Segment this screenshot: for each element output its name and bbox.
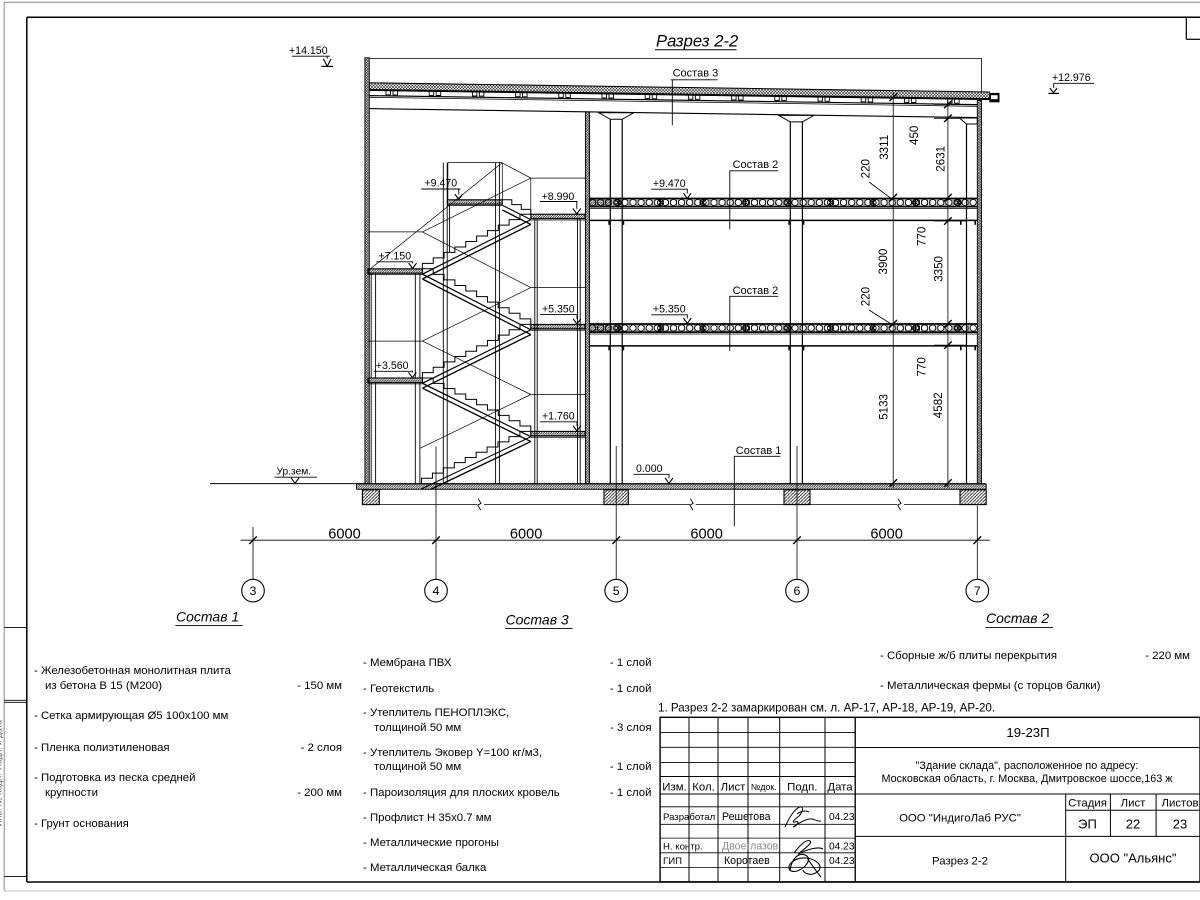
svg-text:+12.976: +12.976	[1052, 72, 1091, 84]
svg-text:- Утеплитель ПЕНОПЛЭКС,: - Утеплитель ПЕНОПЛЭКС,	[363, 707, 509, 719]
svg-text:Лист: Лист	[1121, 798, 1147, 810]
svg-text:6000: 6000	[870, 527, 902, 543]
svg-text:Состав 3: Состав 3	[506, 612, 569, 628]
svg-text:- Сетка армирующая Ø5 100x100: - Сетка армирующая Ø5 100x100 мм	[34, 710, 228, 722]
svg-text:3350: 3350	[932, 256, 945, 282]
svg-text:ООО "Альянс": ООО "Альянс"	[1090, 851, 1177, 866]
svg-text:"Здание склада", расположенное: "Здание склада", расположенное по адресу…	[916, 760, 1139, 772]
svg-text:Изм.: Изм.	[662, 782, 686, 794]
svg-text:Решетова: Решетова	[722, 811, 771, 823]
svg-text:04.23: 04.23	[829, 812, 855, 823]
svg-text:- 200 мм: - 200 мм	[297, 787, 342, 799]
svg-text:ЭП: ЭП	[1078, 817, 1097, 832]
svg-text:- Подготовка из песка средней: - Подготовка из песка средней	[34, 772, 196, 784]
svg-text:+8.990: +8.990	[542, 191, 575, 203]
svg-text:Подп.: Подп.	[787, 782, 817, 794]
svg-text:Состав 2: Состав 2	[986, 610, 1049, 626]
svg-text:6000: 6000	[690, 527, 722, 543]
svg-text:Разработал: Разработал	[663, 812, 715, 823]
svg-text:3900: 3900	[877, 249, 890, 275]
svg-text:- 3 слоя: - 3 слоя	[610, 722, 651, 734]
svg-text:+5.350: +5.350	[542, 303, 575, 315]
svg-text:- Металлические прогоны: - Металлические прогоны	[363, 837, 499, 849]
svg-text:2631: 2631	[934, 146, 947, 172]
svg-text:1. Разрез 2-2 замаркирован см.: 1. Разрез 2-2 замаркирован см. л. АР-17,…	[658, 702, 995, 715]
svg-text:- 1 слой: - 1 слой	[610, 787, 652, 799]
svg-text:0.000: 0.000	[636, 463, 663, 475]
svg-text:23: 23	[1173, 817, 1187, 832]
svg-text:Листов: Листов	[1161, 798, 1198, 810]
svg-text:7: 7	[974, 584, 981, 598]
svg-text:450: 450	[908, 126, 921, 145]
svg-text:Стадия: Стадия	[1068, 798, 1107, 810]
svg-text:- Геотекстиль: - Геотекстиль	[363, 683, 434, 695]
svg-text:+3.560: +3.560	[376, 360, 409, 372]
svg-text:Коротаев: Коротаев	[724, 855, 770, 867]
svg-text:- 220 мм: - 220 мм	[1145, 650, 1190, 662]
svg-text:+14.150: +14.150	[289, 45, 328, 57]
svg-text:Н. контр.: Н. контр.	[663, 841, 703, 852]
svg-text:- 1 слой: - 1 слой	[610, 657, 652, 669]
svg-text:Состав 1: Состав 1	[736, 445, 782, 457]
svg-text:22: 22	[1126, 817, 1140, 832]
svg-text:6: 6	[794, 584, 801, 598]
svg-text:3: 3	[250, 584, 257, 598]
svg-text:Подп. и дата: Подп. и дата	[0, 720, 4, 770]
svg-text:- Утеплитель Эковер Y=100 кг/м: - Утеплитель Эковер Y=100 кг/м3,	[363, 747, 542, 759]
svg-text:Состав 2: Состав 2	[733, 285, 779, 297]
svg-text:Лист: Лист	[721, 782, 747, 794]
svg-text:крупности: крупности	[45, 787, 98, 799]
svg-text:ООО "ИндигоЛаб РУС": ООО "ИндигоЛаб РУС"	[899, 812, 1021, 824]
svg-text:Состав 2: Состав 2	[733, 159, 779, 171]
svg-text:Ур.зем.: Ур.зем.	[277, 467, 312, 478]
svg-text:220: 220	[859, 287, 872, 306]
svg-text:+1.760: +1.760	[542, 411, 575, 423]
svg-text:ГИП: ГИП	[663, 856, 682, 867]
svg-text:- 150 мм: - 150 мм	[297, 680, 342, 692]
svg-text:- Металлическая фермы (с торцо: - Металлическая фермы (с торцов балки)	[880, 680, 1101, 692]
svg-text:- Металлическая балка: - Металлическая балка	[363, 862, 487, 874]
svg-text:Состав 1: Состав 1	[176, 609, 239, 625]
svg-text:Дата: Дата	[827, 782, 853, 794]
svg-text:- 1 слой: - 1 слой	[610, 683, 652, 695]
svg-text:6000: 6000	[510, 527, 542, 543]
svg-text:Разрез 2-2: Разрез 2-2	[932, 856, 988, 868]
svg-text:+7.150: +7.150	[378, 251, 411, 263]
svg-text:3311: 3311	[878, 135, 891, 160]
svg-text:Кол.: Кол.	[692, 782, 715, 794]
svg-text:- 1 слой: - 1 слой	[610, 761, 652, 773]
svg-text:- Пленка полиэтиленовая: - Пленка полиэтиленовая	[34, 742, 170, 754]
svg-text:- Сборные ж/б плиты перекрытия: - Сборные ж/б плиты перекрытия	[880, 650, 1057, 662]
svg-text:+9.470: +9.470	[425, 178, 458, 190]
svg-text:- Железобетонная монолитная п: - Железобетонная монолитная плита	[34, 665, 231, 677]
svg-text:04.23: 04.23	[829, 841, 855, 852]
svg-text:770: 770	[915, 227, 928, 246]
svg-text:- Грунт основания: - Грунт основания	[34, 818, 129, 830]
svg-text:5133: 5133	[877, 394, 890, 420]
svg-text:- Профлист Н 35x0.7 мм: - Профлист Н 35x0.7 мм	[363, 812, 492, 824]
svg-text:- 2 слоя: - 2 слоя	[301, 742, 342, 754]
svg-text:Московская область, г. Москва,: Московская область, г. Москва, Дмитровск…	[882, 773, 1174, 785]
svg-text:Состав 3: Состав 3	[673, 68, 719, 80]
svg-text:6000: 6000	[328, 527, 360, 543]
svg-text:+5.350: +5.350	[653, 303, 686, 315]
svg-text:толщиной 50 мм: толщиной 50 мм	[374, 761, 461, 773]
svg-text:- Пароизоляция для плоских кро: - Пароизоляция для плоских кровель	[363, 787, 560, 799]
svg-text:№док.: №док.	[751, 782, 777, 792]
svg-text:770: 770	[915, 357, 928, 376]
svg-text:- Мембрана ПВХ: - Мембрана ПВХ	[363, 657, 452, 669]
svg-text:Разрез 2-2: Разрез 2-2	[656, 32, 738, 51]
svg-text:Инв. № подл.: Инв. № подл.	[0, 774, 4, 827]
svg-text:5: 5	[613, 584, 620, 598]
svg-text:4: 4	[433, 584, 440, 598]
svg-text:19-23П: 19-23П	[1006, 725, 1049, 740]
svg-text:220: 220	[859, 159, 872, 178]
svg-text:толщиной 50 мм: толщиной 50 мм	[374, 722, 461, 734]
svg-text:+9.470: +9.470	[653, 178, 686, 190]
svg-text:4582: 4582	[932, 392, 945, 418]
svg-text:Двоеглазов: Двоеглазов	[722, 840, 779, 852]
svg-text:04.23: 04.23	[829, 856, 855, 867]
svg-text:из бетона В 15 (М200): из бетона В 15 (М200)	[45, 680, 162, 692]
